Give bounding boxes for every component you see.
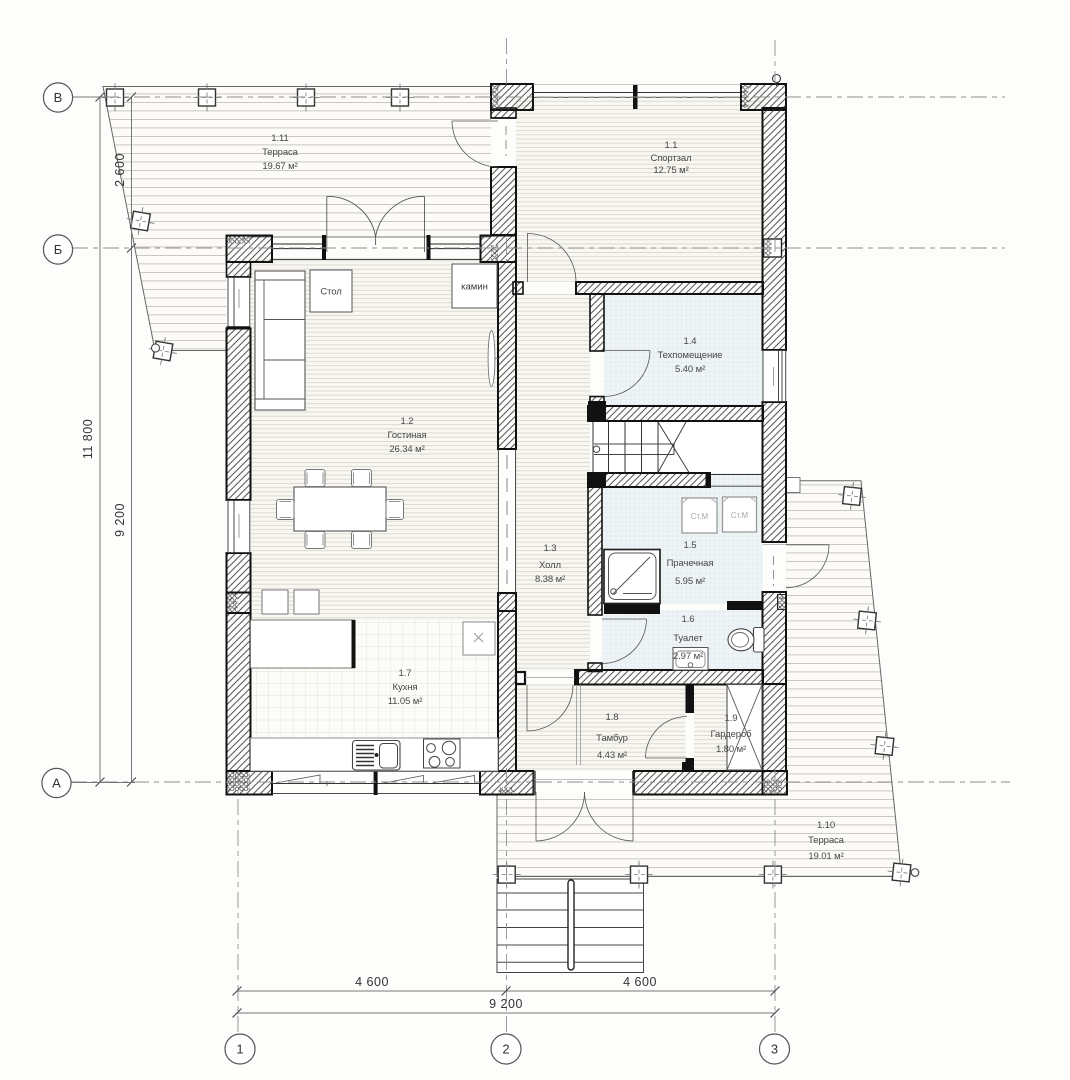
svg-text:9 200: 9 200 (489, 997, 523, 1011)
svg-text:1.7: 1.7 (399, 668, 412, 679)
svg-text:камин: камин (461, 282, 488, 293)
svg-text:1: 1 (236, 1042, 243, 1057)
svg-text:1.11: 1.11 (271, 133, 288, 144)
svg-text:8.38 м²: 8.38 м² (535, 574, 565, 585)
svg-text:19.67 м²: 19.67 м² (262, 161, 297, 172)
svg-text:1.2: 1.2 (401, 416, 414, 427)
svg-text:2 600: 2 600 (113, 153, 127, 187)
svg-text:1.1: 1.1 (665, 140, 678, 151)
svg-text:19.01 м²: 19.01 м² (808, 851, 843, 862)
svg-text:Спортзал: Спортзал (650, 153, 691, 164)
svg-text:В: В (54, 90, 63, 105)
svg-text:Терраса: Терраса (262, 147, 299, 158)
svg-text:1.3: 1.3 (544, 543, 557, 554)
svg-text:1.4: 1.4 (684, 336, 697, 347)
svg-text:2: 2 (502, 1042, 509, 1057)
svg-text:Б: Б (54, 242, 63, 257)
svg-text:2.97 м²: 2.97 м² (673, 651, 703, 662)
svg-text:Стол: Стол (320, 287, 341, 298)
svg-text:Техпомещение: Техпомещение (658, 350, 723, 361)
svg-text:Туалет: Туалет (673, 633, 703, 644)
svg-text:Гардероб: Гардероб (711, 729, 753, 740)
svg-text:4 600: 4 600 (355, 975, 389, 989)
svg-text:26.34 м²: 26.34 м² (389, 444, 424, 455)
svg-text:3: 3 (771, 1042, 778, 1057)
svg-text:11.05 м²: 11.05 м² (388, 696, 423, 707)
svg-text:Кухня: Кухня (393, 682, 418, 693)
svg-text:1.9: 1.9 (725, 713, 738, 724)
svg-text:9 200: 9 200 (113, 503, 127, 537)
svg-text:1.10: 1.10 (817, 820, 835, 831)
svg-text:1.8: 1.8 (606, 712, 619, 723)
svg-text:Ст.М: Ст.М (691, 512, 709, 521)
svg-text:5.95 м²: 5.95 м² (675, 576, 705, 587)
svg-text:Гостиная: Гостиная (387, 430, 426, 441)
svg-text:5.40 м²: 5.40 м² (675, 364, 705, 375)
svg-text:4.43 м²: 4.43 м² (597, 750, 627, 761)
svg-text:Терраса: Терраса (808, 835, 845, 846)
svg-text:12.75 м²: 12.75 м² (653, 165, 688, 176)
svg-text:Прачечная: Прачечная (667, 558, 714, 569)
svg-text:Холл: Холл (539, 560, 561, 571)
svg-text:4 600: 4 600 (623, 975, 657, 989)
svg-text:1.5: 1.5 (684, 540, 697, 551)
svg-text:1.6: 1.6 (682, 614, 695, 625)
svg-text:Тамбур: Тамбур (596, 733, 628, 744)
svg-text:11 800: 11 800 (81, 419, 95, 459)
svg-text:1.80 м²: 1.80 м² (716, 744, 746, 755)
svg-text:Ст.М: Ст.М (731, 511, 749, 520)
svg-text:А: А (52, 776, 61, 791)
